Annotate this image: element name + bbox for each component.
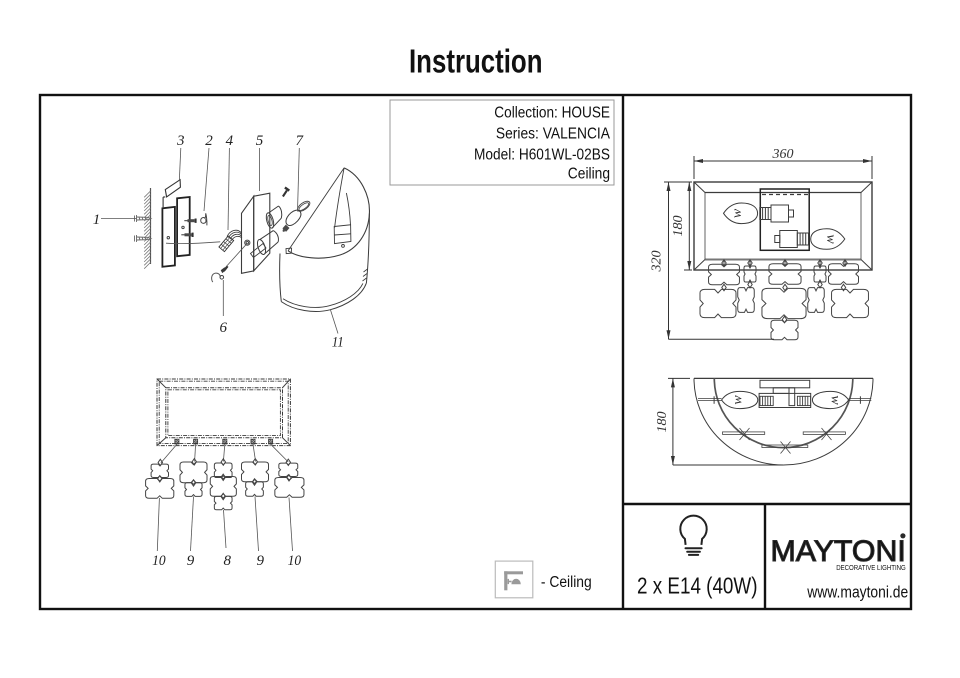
svg-text:Series: VALENCIA: Series: VALENCIA bbox=[496, 126, 611, 143]
svg-text:www.maytoni.de: www.maytoni.de bbox=[806, 583, 908, 601]
svg-text:4: 4 bbox=[226, 133, 234, 149]
svg-text:w: w bbox=[731, 395, 746, 405]
svg-text:1: 1 bbox=[93, 212, 101, 228]
svg-text:Collection: HOUSE: Collection: HOUSE bbox=[494, 105, 610, 122]
svg-text:5: 5 bbox=[256, 133, 264, 149]
svg-text:6: 6 bbox=[220, 320, 228, 336]
svg-text:180: 180 bbox=[671, 216, 686, 237]
svg-text:320: 320 bbox=[650, 251, 665, 273]
svg-text:w: w bbox=[828, 395, 843, 405]
svg-text:2: 2 bbox=[205, 133, 213, 149]
svg-text:2 x E14 (40W): 2 x E14 (40W) bbox=[637, 573, 758, 599]
svg-text:Instruction: Instruction bbox=[409, 44, 543, 81]
svg-text:- Ceiling: - Ceiling bbox=[541, 574, 592, 591]
svg-text:Model: H601WL-02BS: Model: H601WL-02BS bbox=[474, 147, 610, 164]
svg-text:10: 10 bbox=[288, 553, 302, 569]
svg-text:180: 180 bbox=[655, 412, 670, 433]
svg-text:w: w bbox=[730, 208, 745, 218]
svg-text:8: 8 bbox=[224, 553, 232, 569]
svg-text:DECORATIVE LIGHTING: DECORATIVE LIGHTING bbox=[836, 565, 906, 572]
svg-text:MAYTONI: MAYTONI bbox=[771, 535, 906, 568]
svg-text:9: 9 bbox=[187, 553, 195, 569]
svg-text:11: 11 bbox=[332, 334, 344, 350]
svg-text:Ceiling: Ceiling bbox=[568, 165, 610, 182]
svg-text:3: 3 bbox=[176, 133, 185, 149]
svg-text:360: 360 bbox=[772, 147, 794, 162]
svg-text:10: 10 bbox=[152, 553, 166, 569]
svg-text:w: w bbox=[823, 234, 838, 244]
svg-text:9: 9 bbox=[256, 553, 264, 569]
